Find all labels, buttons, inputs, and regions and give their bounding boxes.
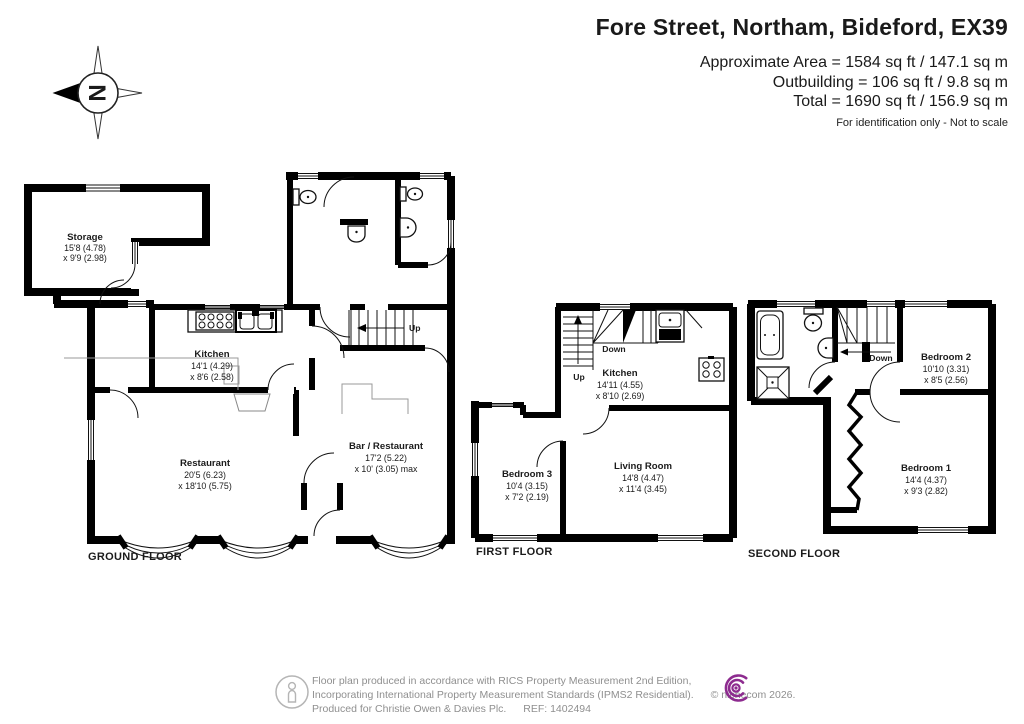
disclaimer: For identification only - Not to scale (596, 117, 1008, 129)
svg-text:Kitchen: Kitchen (194, 349, 229, 360)
svg-text:x 7'2 (2.19): x 7'2 (2.19) (505, 492, 549, 502)
svg-text:x 9'3 (2.82): x 9'3 (2.82) (904, 486, 948, 496)
room-label-bedroom-3: Bedroom 3 10'4 (3.15) x 7'2 (2.19) (502, 469, 552, 502)
outbuilding-area: Outbuilding = 106 sq ft / 9.8 sq m (596, 73, 1008, 93)
bathtub-icon (757, 311, 783, 359)
floor-label-first: FIRST FLOOR (476, 546, 553, 558)
svg-text:Bar / Restaurant: Bar / Restaurant (349, 441, 424, 452)
second-floor-stairs: Down (837, 307, 895, 363)
room-label-restaurant: Restaurant 20'5 (6.23) x 18'10 (5.75) (178, 458, 232, 491)
svg-text:14'4 (4.37): 14'4 (4.37) (905, 475, 947, 485)
ground-floor-plan: Up (20, 168, 470, 568)
wc-fixtures (293, 187, 423, 242)
room-label-bedroom-2: Bedroom 2 10'10 (3.31) x 8'5 (2.56) (921, 352, 971, 385)
svg-text:17'2 (5.22): 17'2 (5.22) (365, 453, 407, 463)
room-label-bedroom-1: Bedroom 1 14'4 (4.37) x 9'3 (2.82) (901, 463, 952, 496)
stairs-up-label: Up (573, 372, 584, 382)
room-label-kitchen-ground: Kitchen 14'1 (4.29) x 8'6 (2.58) (190, 349, 234, 382)
svg-text:Bedroom 3: Bedroom 3 (502, 469, 552, 480)
compass-letter: N (85, 84, 112, 101)
svg-text:Bedroom 1: Bedroom 1 (901, 463, 952, 474)
svg-text:20'5 (6.23): 20'5 (6.23) (184, 470, 226, 480)
kitchen-fixtures (64, 310, 408, 414)
compass-icon: N (52, 42, 144, 142)
total-area: Total = 1690 sq ft / 156.9 sq m (596, 92, 1008, 112)
stairs-down-label: Down (602, 344, 625, 354)
svg-text:14'11 (4.55): 14'11 (4.55) (597, 380, 643, 390)
svg-text:Living Room: Living Room (614, 461, 672, 472)
sink-icon (818, 338, 833, 358)
svg-text:10'10 (3.31): 10'10 (3.31) (923, 364, 970, 374)
sink-icon (348, 226, 365, 242)
svg-text:Restaurant: Restaurant (180, 458, 231, 469)
shower-icon (757, 367, 789, 399)
room-label-storage: Storage 15'8 (4.78) x 9'9 (2.98) (63, 232, 107, 263)
footer-line2: Incorporating International Property Mea… (312, 689, 694, 701)
person-icon (274, 674, 310, 710)
svg-text:x 8'5 (2.56): x 8'5 (2.56) (924, 375, 968, 385)
svg-text:x 9'9 (2.98): x 9'9 (2.98) (63, 253, 107, 263)
approx-area: Approximate Area = 1584 sq ft / 147.1 sq… (596, 53, 1008, 73)
nichecom-logo (712, 660, 762, 716)
svg-text:x 8'6 (2.58): x 8'6 (2.58) (190, 372, 234, 382)
page-title: Fore Street, Northam, Bideford, EX39 (596, 14, 1008, 41)
footer-ref: REF: 1402494 (523, 703, 591, 715)
svg-text:Bedroom 2: Bedroom 2 (921, 352, 971, 363)
bar-counter (342, 384, 408, 414)
svg-text:14'8 (4.47): 14'8 (4.47) (622, 473, 664, 483)
footer-line3: Produced for Christie Owen & Davies Plc. (312, 703, 506, 715)
svg-text:x 18'10 (5.75): x 18'10 (5.75) (178, 481, 232, 491)
eaves-zigzag-wall (849, 392, 861, 510)
header: Fore Street, Northam, Bideford, EX39 App… (596, 14, 1008, 129)
hob-icon (699, 356, 724, 381)
second-floor-doors (809, 362, 900, 422)
svg-text:10'4 (3.15): 10'4 (3.15) (506, 481, 548, 491)
svg-text:Storage: Storage (67, 232, 103, 243)
hob-icon (196, 312, 234, 330)
double-sink-icon (236, 310, 276, 332)
svg-text:x 11'4 (3.45): x 11'4 (3.45) (619, 484, 667, 494)
svg-text:x 8'10 (2.69): x 8'10 (2.69) (596, 391, 645, 401)
room-label-kitchen-first: Kitchen 14'11 (4.55) x 8'10 (2.69) (596, 368, 645, 401)
svg-text:x 10' (3.05) max: x 10' (3.05) max (355, 464, 418, 474)
first-floor-labels: Kitchen 14'11 (4.55) x 8'10 (2.69) Bedro… (476, 368, 672, 558)
stairs-up-label: Up (409, 323, 420, 333)
floor-label-second: SECOND FLOOR (748, 548, 840, 560)
svg-text:15'8 (4.78): 15'8 (4.78) (64, 243, 106, 253)
first-floor-plan: Up Down Kitchen 14'11 (4.55) x 8'10 (2.6… (468, 298, 743, 563)
first-floor-fixtures (656, 310, 724, 381)
room-label-bar-restaurant: Bar / Restaurant 17'2 (5.22) x 10' (3.05… (349, 441, 424, 474)
toilet-icon (293, 189, 299, 205)
second-floor-windows (777, 300, 968, 534)
sink-unit-icon (656, 310, 684, 342)
floor-label-ground: GROUND FLOOR (88, 551, 182, 563)
svg-text:14'1 (4.29): 14'1 (4.29) (191, 361, 233, 371)
svg-text:Kitchen: Kitchen (602, 368, 637, 379)
room-label-living-room: Living Room 14'8 (4.47) x 11'4 (3.45) (614, 461, 672, 494)
ground-floor-stairs: Up (349, 310, 420, 345)
toilet-icon (400, 187, 406, 201)
second-floor-plan: Down Bedroom 2 10'10 (3.31) x 8'5 (2.56) (743, 295, 998, 565)
serving-hatch (234, 394, 270, 411)
first-floor-walls (475, 307, 733, 538)
stairs-down-label: Down (869, 353, 892, 363)
second-floor-walls (748, 304, 992, 534)
toilet-icon (804, 308, 823, 331)
